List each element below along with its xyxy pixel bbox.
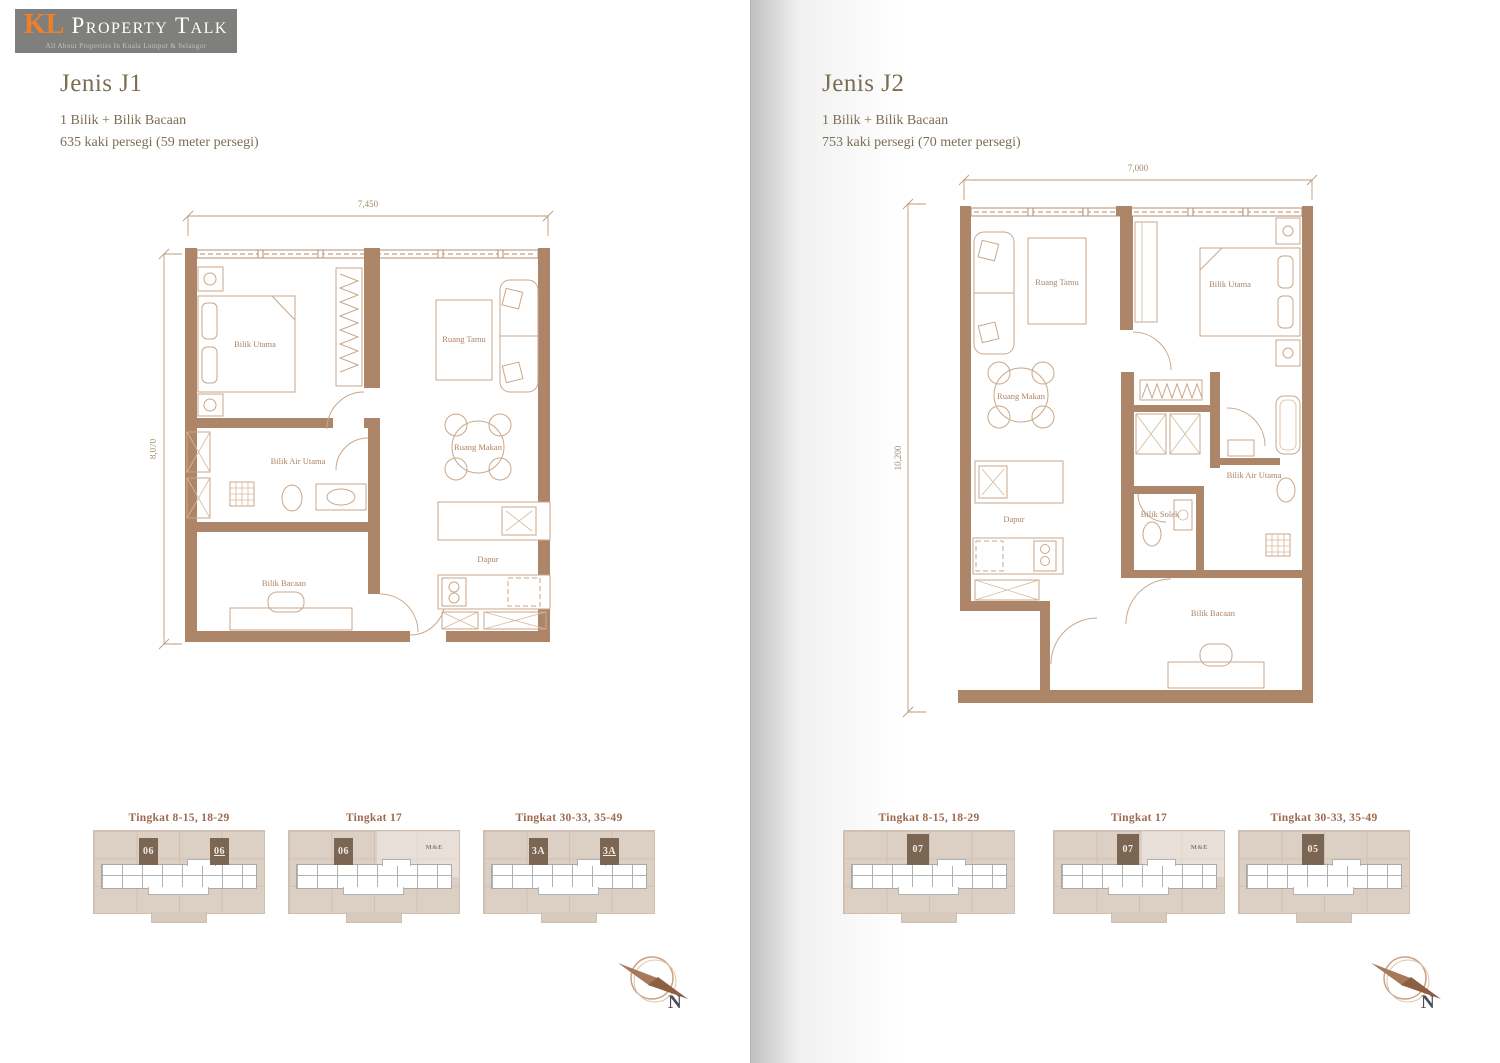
- floorplan-j1: 7,450 8,070: [150, 192, 580, 662]
- keyplan-building-diagram: 06 M&E: [288, 830, 460, 914]
- keyplan-title: Tingkat 30-33, 35-49: [483, 812, 655, 824]
- room-label-bilik-utama-j1: Bilik Utama: [234, 339, 276, 349]
- unit-title-j1: Jenis J1: [60, 70, 142, 98]
- brand-logo-tagline: All About Properties In Kuala Lumpur & S…: [15, 42, 237, 50]
- north-label: N: [668, 992, 682, 1014]
- dim-left-j1: 8,070: [150, 438, 158, 459]
- brand-logo-name: Property Talk: [71, 13, 228, 38]
- keyplan-title: Tingkat 30-33, 35-49: [1238, 812, 1410, 824]
- highlighted-unit: 06: [334, 838, 353, 865]
- dimension-line-top-j2: [959, 175, 1317, 200]
- dimension-line-top-j1: [183, 211, 553, 236]
- keyplan-building-diagram: 05: [1238, 830, 1410, 914]
- dimension-line-left-j2: [903, 199, 926, 717]
- keyplan-j1-tingkat-30-33: Tingkat 30-33, 35-49 3A 3A: [483, 812, 655, 914]
- keyplan-building-diagram: 07: [843, 830, 1015, 914]
- brochure-spread: KLProperty Talk All About Properties In …: [0, 0, 1500, 1063]
- keyplan-title: Tingkat 8-15, 18-29: [93, 812, 265, 824]
- me-label: M&E: [426, 844, 443, 851]
- compass-icon: [612, 948, 712, 1023]
- room-label-bilik-bacaan-j1: Bilik Bacaan: [262, 578, 307, 588]
- keyplan-core-tab: [901, 912, 957, 923]
- keyplan-floorplate: [851, 864, 1007, 889]
- keyplan-j1-tingkat-17: Tingkat 17 06 M&E: [288, 812, 460, 914]
- keyplan-title: Tingkat 17: [1053, 812, 1225, 824]
- highlighted-unit: 06: [139, 838, 158, 865]
- room-label-ruang-tamu-j2: Ruang Tamu: [1035, 277, 1079, 287]
- highlighted-unit: 3A: [529, 838, 548, 865]
- brand-logo-text: KLProperty Talk: [15, 11, 237, 43]
- highlighted-unit: 06: [210, 838, 229, 865]
- keyplan-core-tab: [1296, 912, 1352, 923]
- compass: N: [612, 948, 712, 1023]
- brand-logo: KLProperty Talk All About Properties In …: [15, 9, 237, 53]
- keyplan-title: Tingkat 8-15, 18-29: [843, 812, 1015, 824]
- dim-left-j2: 10,200: [893, 445, 903, 470]
- keyplan-building-diagram: 3A 3A: [483, 830, 655, 914]
- keyplan-j2-tingkat-8-15: Tingkat 8-15, 18-29 07: [843, 812, 1015, 914]
- keyplan-floorplate: [491, 864, 647, 889]
- keyplan-floorplate: [1061, 864, 1217, 889]
- room-label-bilik-bacaan-j2: Bilik Bacaan: [1191, 608, 1236, 618]
- unit-rooms-j1: 1 Bilik + Bilik Bacaan: [60, 113, 186, 129]
- unit-title-j2: Jenis J2: [822, 70, 904, 98]
- highlighted-unit: 07: [1117, 834, 1139, 865]
- compass: N: [1365, 948, 1465, 1023]
- room-label-ruang-makan-j2: Ruang Makan: [997, 391, 1046, 401]
- keyplan-core-tab: [151, 912, 207, 923]
- keyplan-building-diagram: 06 06: [93, 830, 265, 914]
- floorplan-j2: 7,000 10,200: [888, 156, 1338, 746]
- room-label-ruang-tamu-j1: Ruang Tamu: [442, 334, 486, 344]
- keyplan-j1-tingkat-8-15: Tingkat 8-15, 18-29 06 06: [93, 812, 265, 914]
- north-label: N: [1421, 992, 1435, 1014]
- room-label-dapur-j1: Dapur: [477, 554, 498, 564]
- dim-top-j1: 7,450: [358, 199, 379, 209]
- highlighted-unit: 05: [1302, 834, 1324, 865]
- keyplan-core-tab: [346, 912, 402, 923]
- room-label-bilik-air-utama-j2: Bilik Air Utama: [1227, 470, 1282, 480]
- highlighted-unit: 3A: [600, 838, 619, 865]
- keyplan-core-tab: [1111, 912, 1167, 923]
- me-label: M&E: [1191, 844, 1208, 851]
- keyplan-core-tab: [541, 912, 597, 923]
- unit-area-j1: 635 kaki persegi (59 meter persegi): [60, 135, 259, 151]
- unit-area-j2: 753 kaki persegi (70 meter persegi): [822, 135, 1021, 151]
- keyplan-j2-tingkat-30-33: Tingkat 30-33, 35-49 05: [1238, 812, 1410, 914]
- keyplan-floorplate: [296, 864, 452, 889]
- keyplan-floorplate: [101, 864, 257, 889]
- room-label-ruang-makan-j1: Ruang Makan: [454, 442, 503, 452]
- keyplan-title: Tingkat 17: [288, 812, 460, 824]
- brand-logo-kl: KL: [24, 9, 64, 40]
- keyplan-j2-tingkat-17: Tingkat 17 07 M&E: [1053, 812, 1225, 914]
- highlighted-unit: 07: [907, 834, 929, 865]
- room-label-bilik-utama-j2: Bilik Utama: [1209, 279, 1251, 289]
- compass-icon: [1365, 948, 1465, 1023]
- keyplan-floorplate: [1246, 864, 1402, 889]
- room-label-dapur-j2: Dapur: [1003, 514, 1024, 524]
- keyplan-building-diagram: 07 M&E: [1053, 830, 1225, 914]
- unit-rooms-j2: 1 Bilik + Bilik Bacaan: [822, 113, 948, 129]
- room-label-bilik-solek-j2: Bilik Solek: [1141, 509, 1180, 519]
- room-label-bilik-air-utama-j1: Bilik Air Utama: [271, 456, 326, 466]
- dim-top-j2: 7,000: [1128, 163, 1149, 173]
- dimension-line-left-j1: [159, 249, 182, 649]
